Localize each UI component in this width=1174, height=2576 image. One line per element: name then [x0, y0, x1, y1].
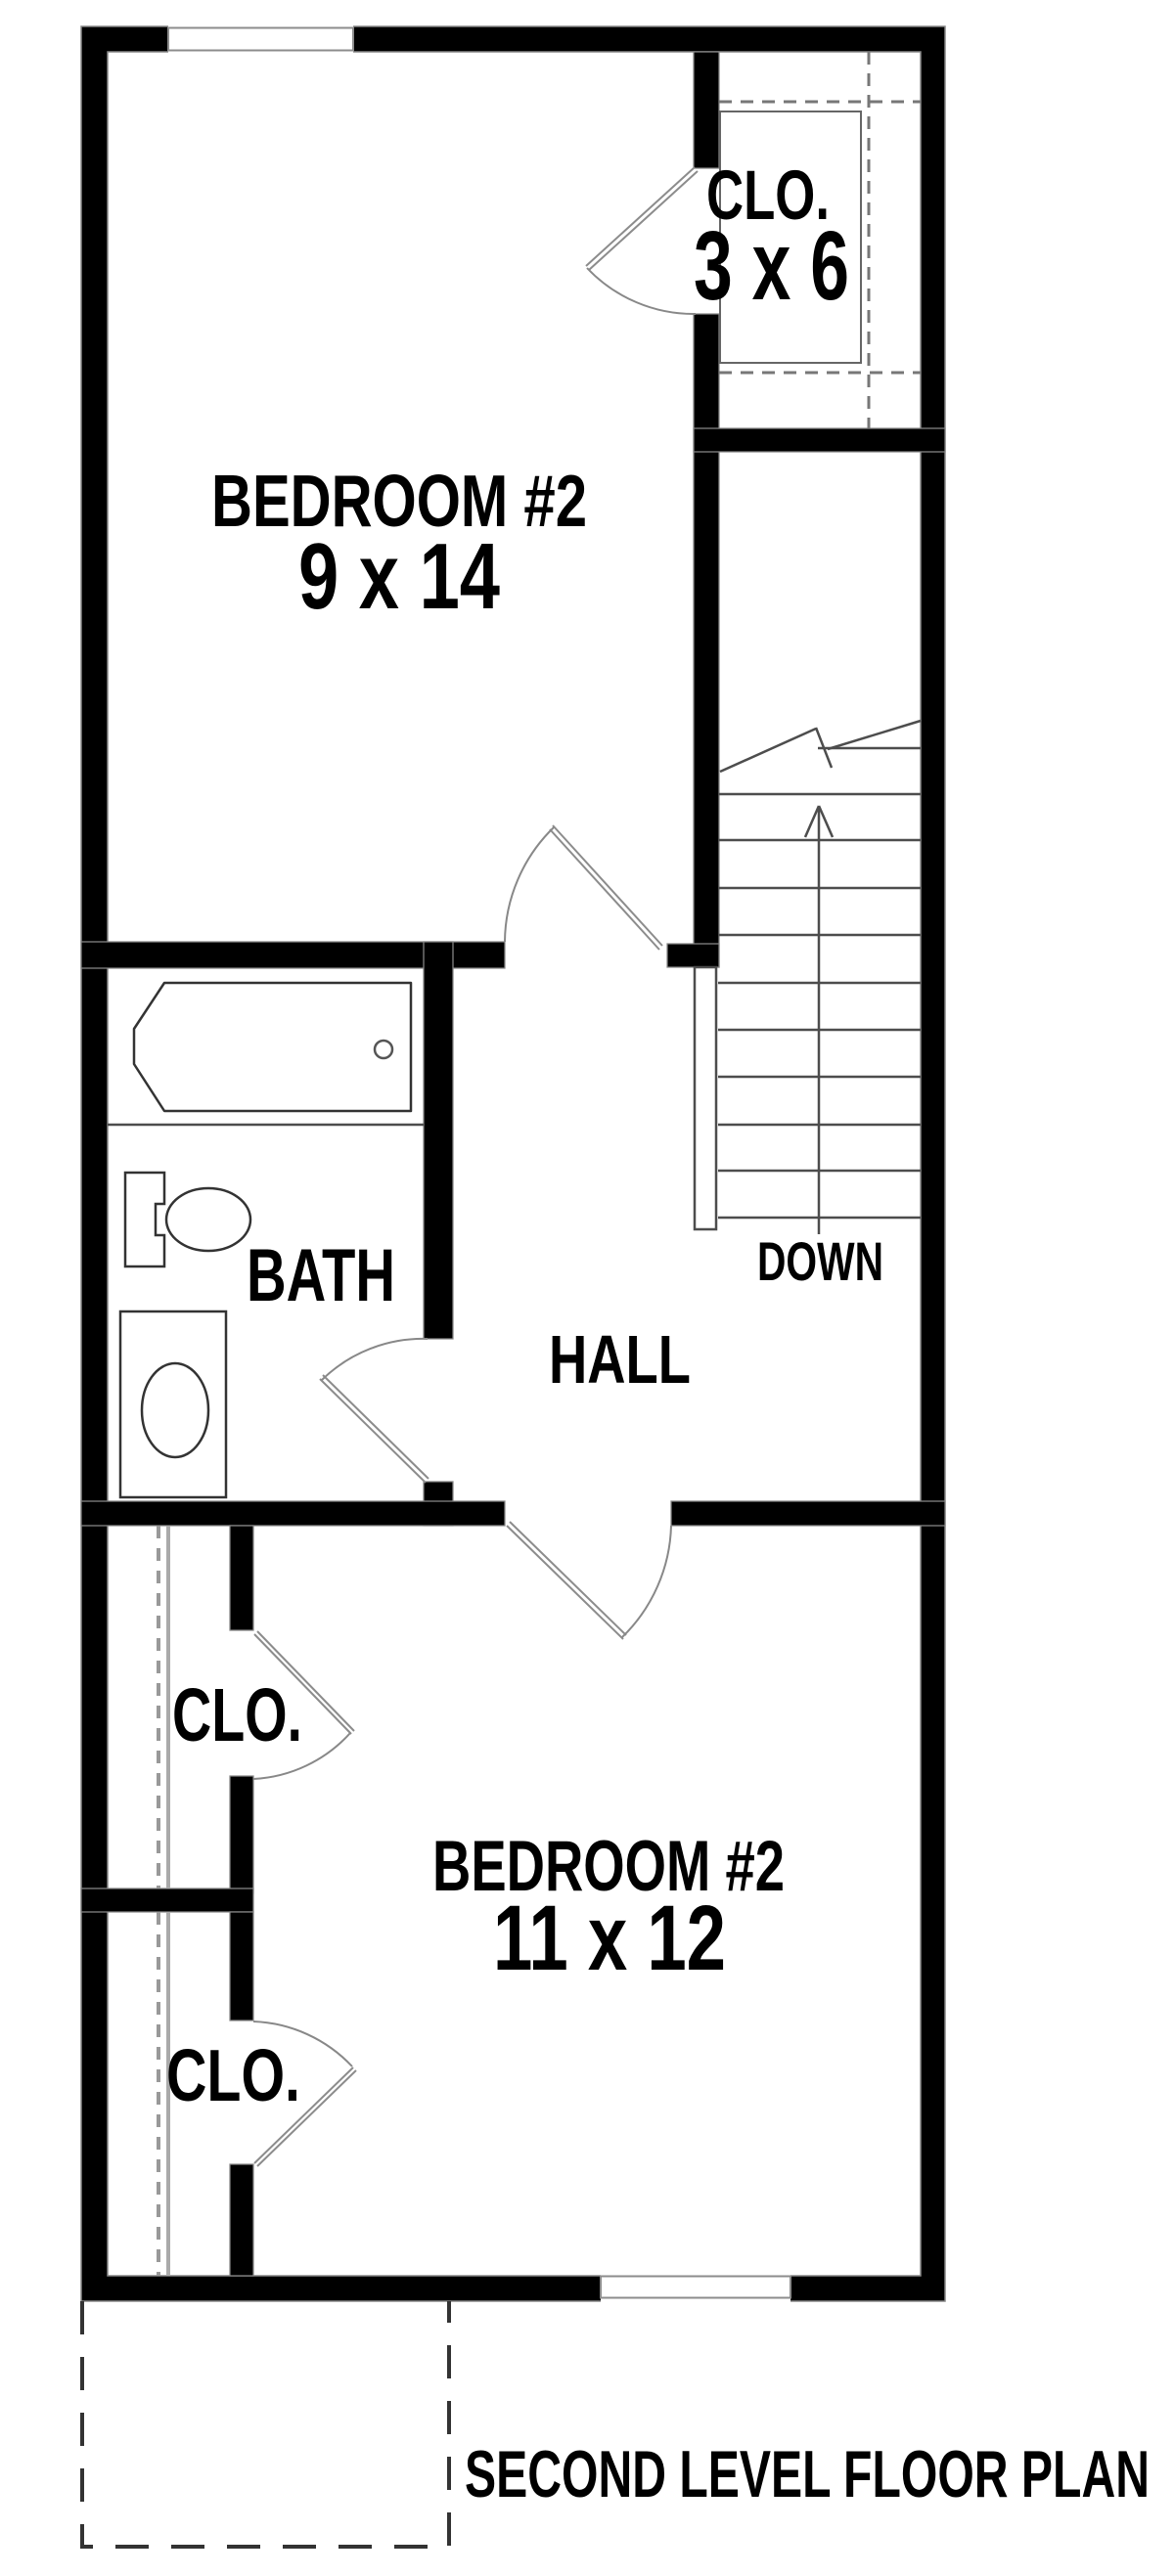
svg-text:DOWN: DOWN	[757, 1230, 883, 1292]
svg-text:CLO.: CLO.	[166, 2034, 300, 2116]
svg-text:CLO.: CLO.	[172, 1673, 302, 1757]
svg-text:11 x 12: 11 x 12	[493, 1887, 726, 1990]
svg-text:SECOND LEVEL FLOOR PLAN: SECOND LEVEL FLOOR PLAN	[465, 2437, 1150, 2511]
svg-text:3 x 6: 3 x 6	[694, 211, 849, 321]
svg-text:9 x 14: 9 x 14	[298, 524, 500, 629]
svg-text:BATH: BATH	[247, 1234, 395, 1317]
svg-text:HALL: HALL	[549, 1321, 691, 1398]
